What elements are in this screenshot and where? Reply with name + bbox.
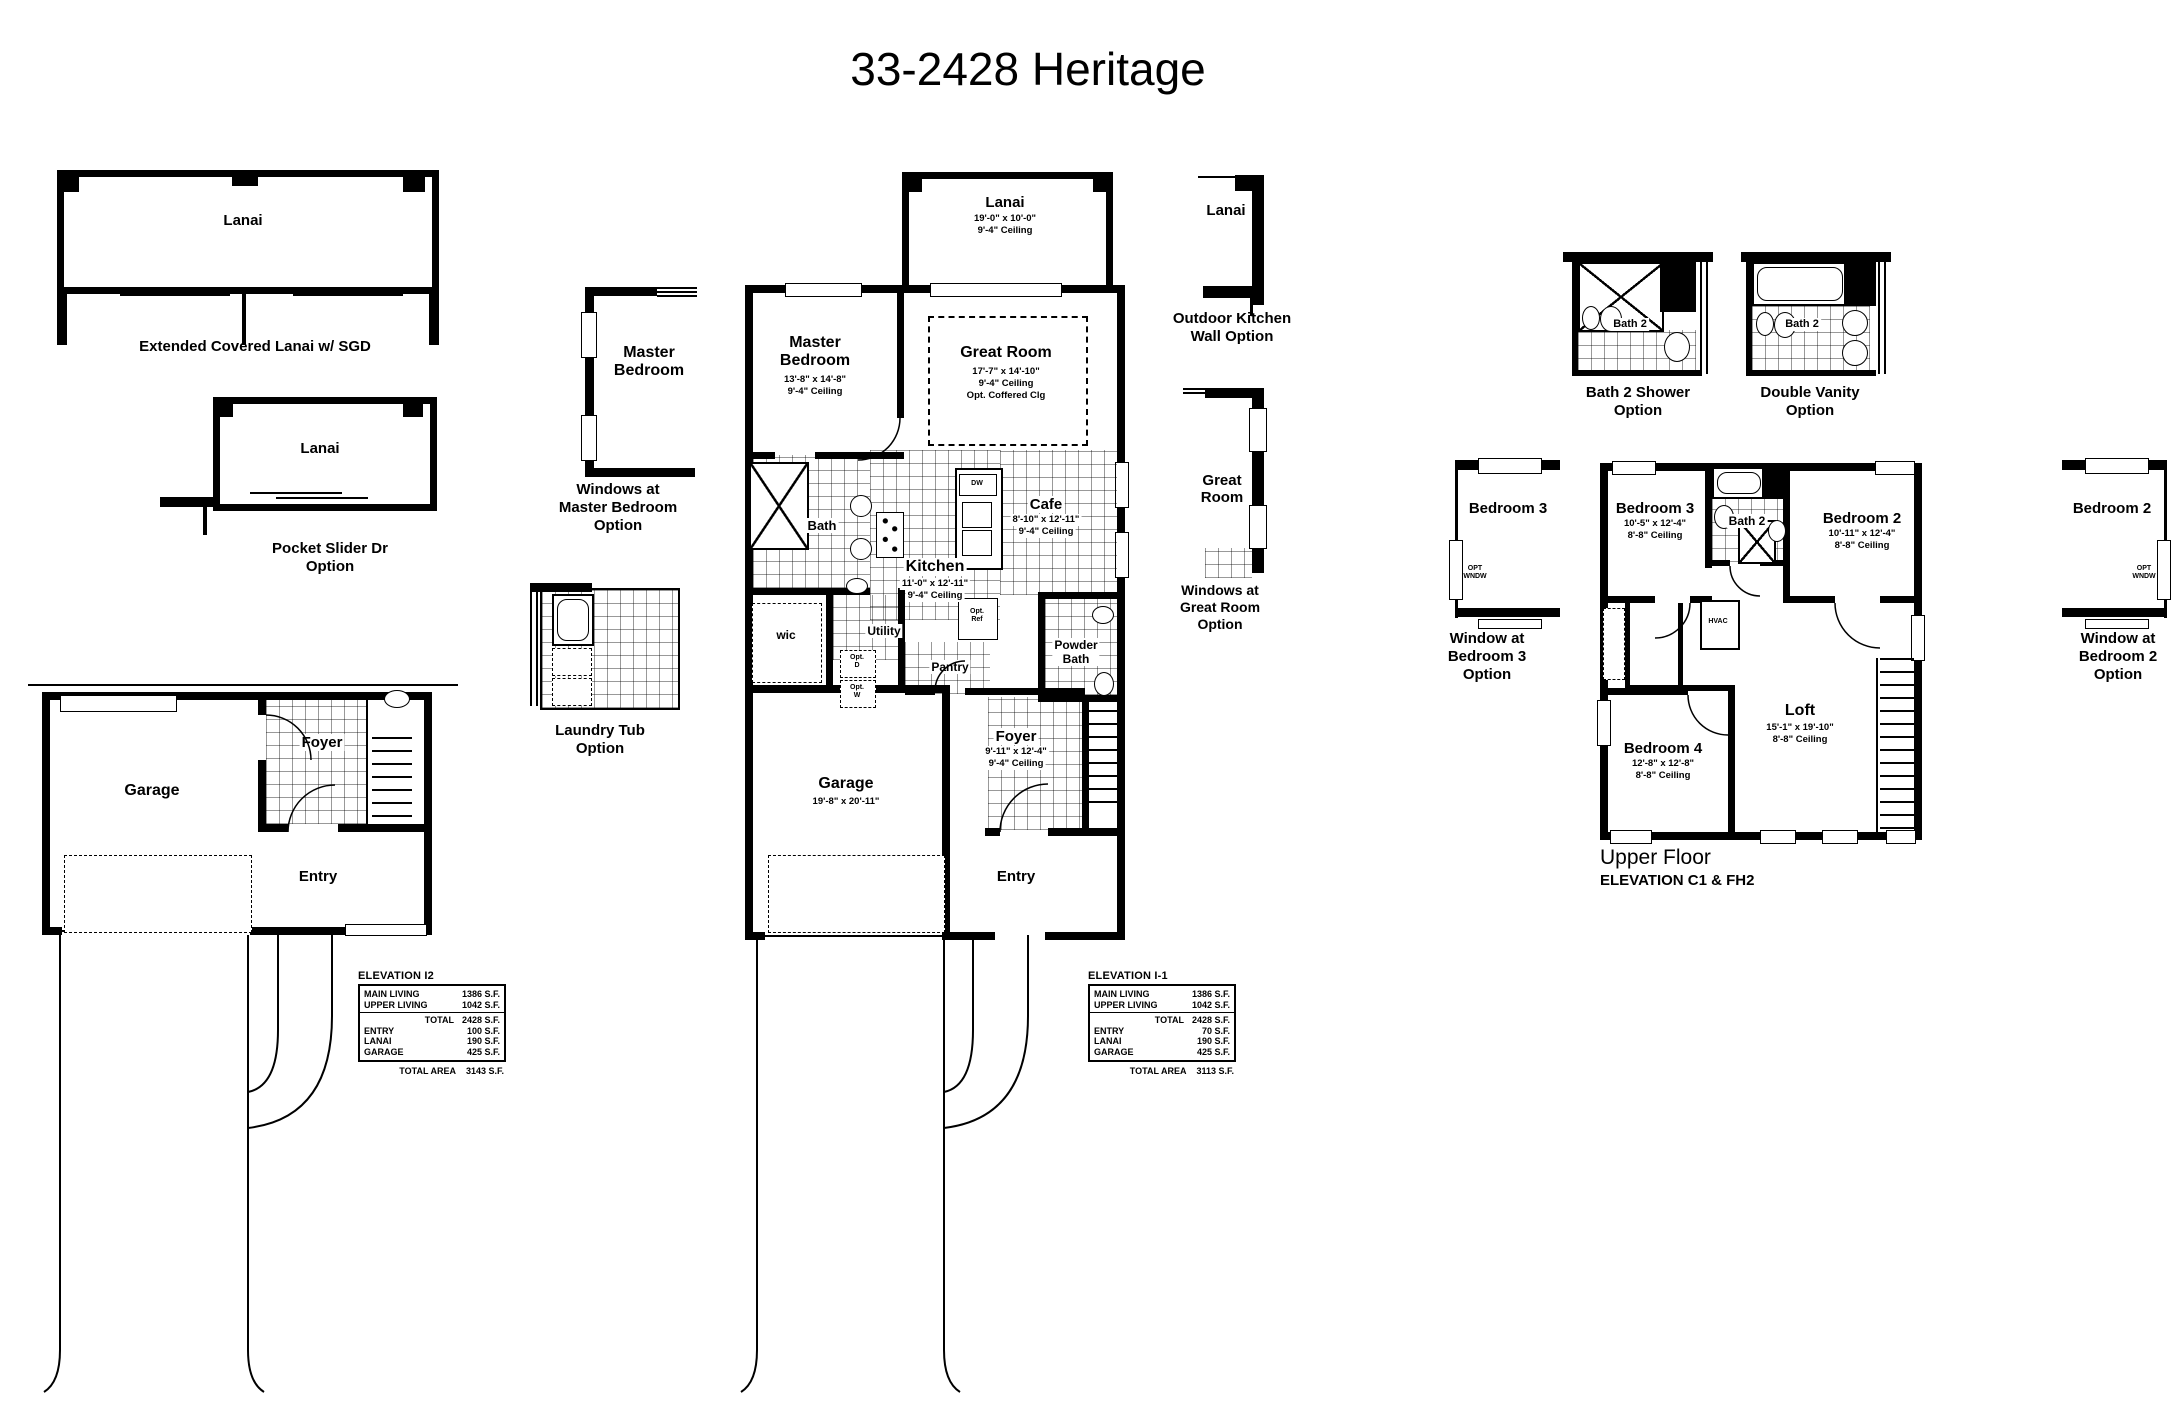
door-arc (1000, 784, 1048, 832)
door-arc (1835, 603, 1880, 648)
door-arc (858, 418, 900, 460)
door-arc (266, 715, 311, 760)
door-arc (288, 785, 335, 832)
driveway-edge (944, 940, 960, 1392)
door-arc (935, 661, 965, 691)
door-arc (1730, 566, 1760, 596)
driveway-edge (741, 940, 757, 1392)
walkway-edge (248, 935, 278, 1092)
door-arc (1655, 603, 1690, 638)
driveway-edge (44, 935, 60, 1392)
walkway-edge (248, 935, 332, 1128)
driveway-edge (248, 935, 264, 1392)
walkway-edge (944, 935, 1028, 1128)
site-lines (0, 0, 2176, 1408)
walkway-edge (944, 935, 973, 1092)
door-arc (1688, 695, 1728, 735)
floorplan-sheet: 33-2428 Heritage Lanai Extended Covered … (0, 0, 2176, 1408)
